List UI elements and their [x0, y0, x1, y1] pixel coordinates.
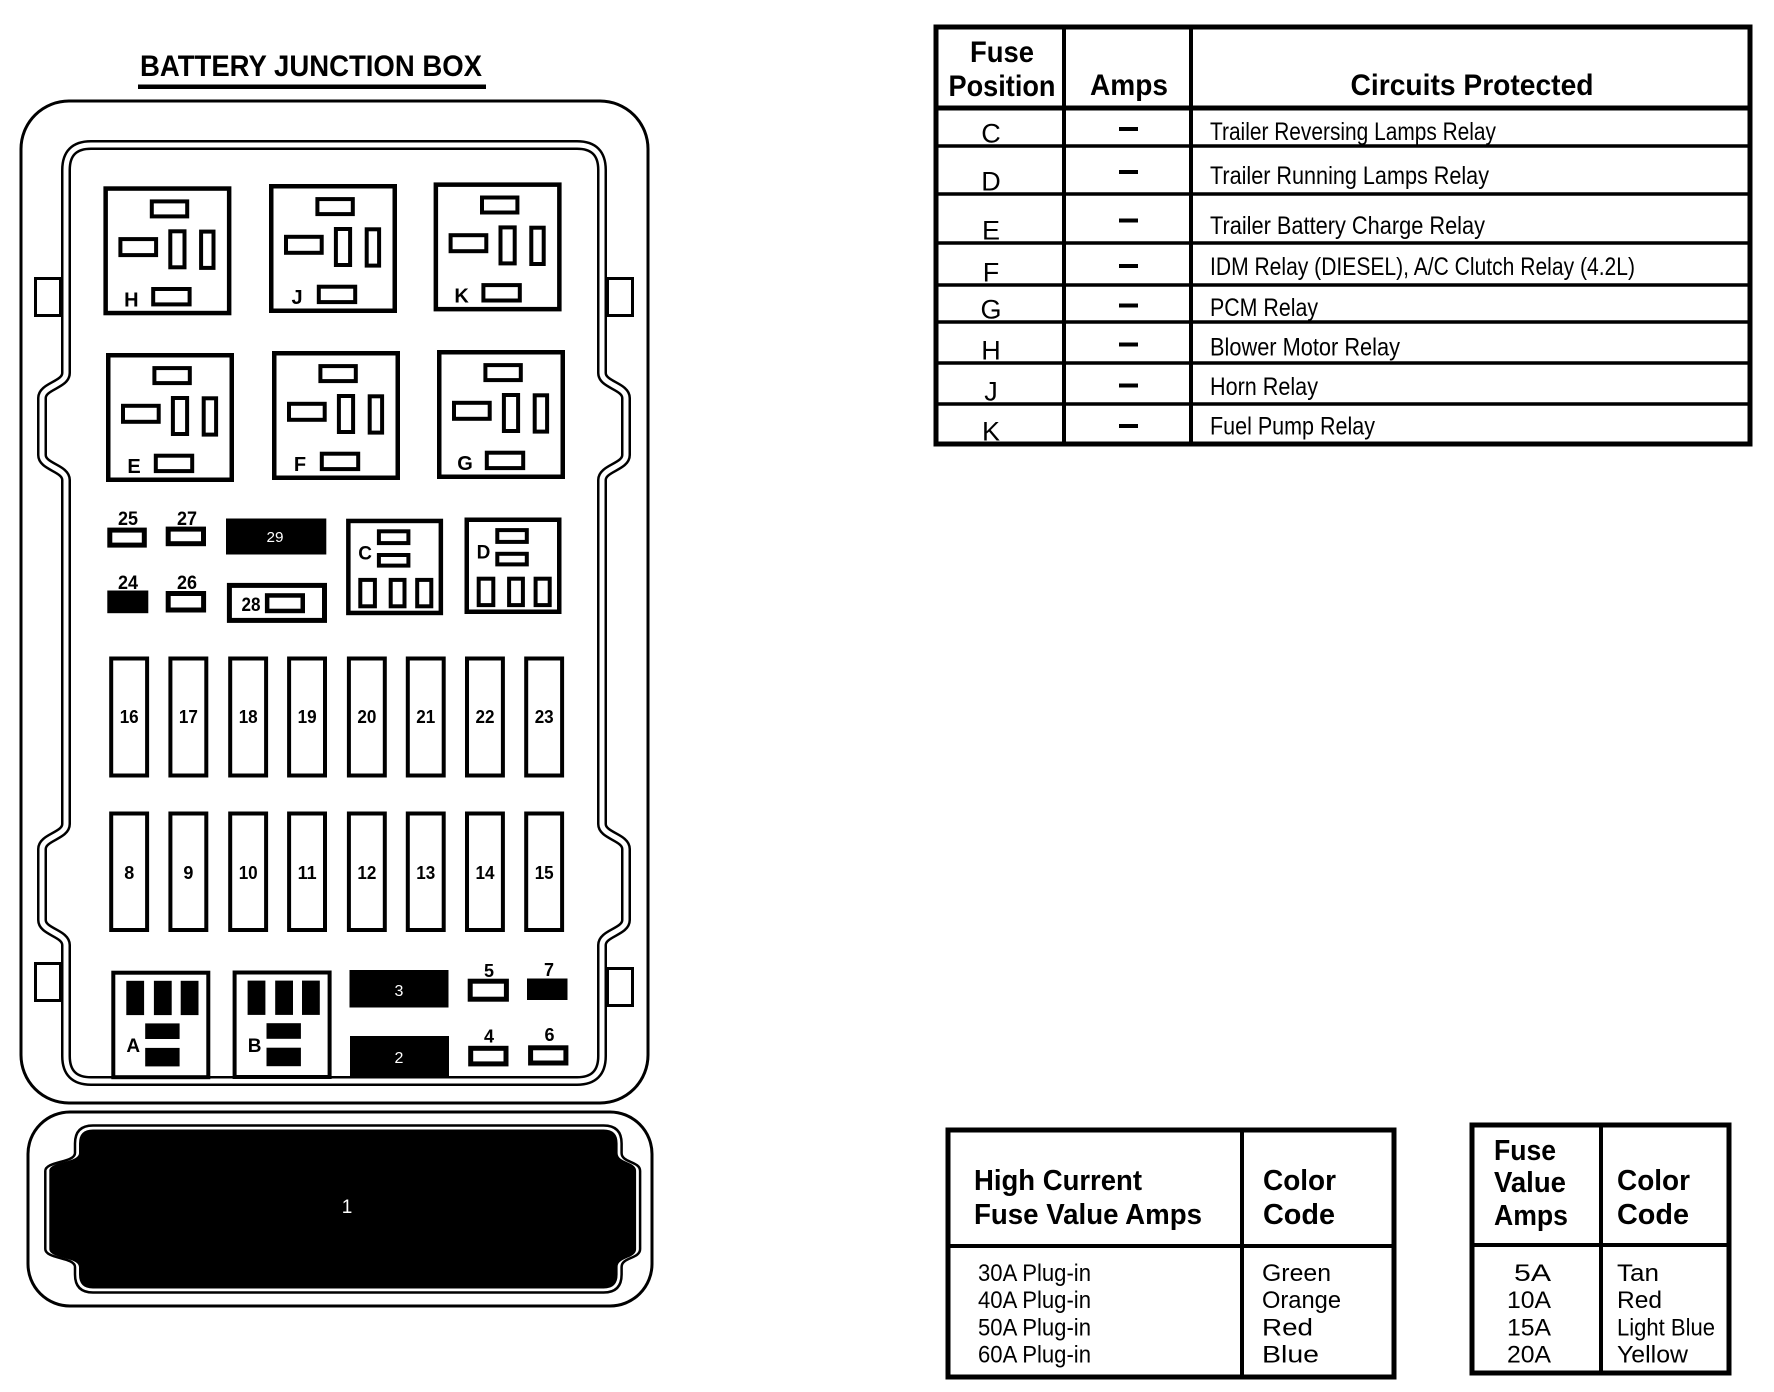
svg-text:Red: Red [1262, 1314, 1313, 1341]
svg-text:H: H [124, 289, 138, 311]
svg-text:E: E [127, 456, 140, 478]
svg-text:Code: Code [1617, 1199, 1689, 1231]
svg-text:F: F [983, 258, 1000, 288]
svg-text:20A: 20A [1507, 1342, 1551, 1369]
svg-text:5: 5 [484, 961, 494, 981]
svg-text:Fuel Pump Relay: Fuel Pump Relay [1210, 413, 1375, 441]
svg-text:1: 1 [342, 1197, 353, 1218]
svg-text:Color: Color [1617, 1165, 1690, 1197]
svg-text:Red: Red [1617, 1287, 1662, 1314]
svg-text:C: C [981, 119, 1001, 149]
svg-text:30A Plug-in: 30A Plug-in [978, 1260, 1091, 1287]
svg-text:13: 13 [416, 863, 435, 883]
svg-text:Fuse: Fuse [1494, 1135, 1556, 1167]
svg-text:K: K [982, 417, 1000, 447]
svg-text:8: 8 [124, 863, 134, 883]
svg-text:Blue: Blue [1262, 1342, 1319, 1369]
svg-text:Trailer Running Lamps Relay: Trailer Running Lamps Relay [1210, 162, 1489, 190]
svg-text:E: E [982, 216, 1000, 246]
svg-text:B: B [248, 1036, 262, 1057]
svg-text:12: 12 [357, 863, 376, 883]
svg-text:20: 20 [357, 707, 376, 727]
svg-text:K: K [454, 285, 469, 307]
svg-text:PCM Relay: PCM Relay [1210, 294, 1318, 322]
svg-text:Yellow: Yellow [1617, 1342, 1689, 1369]
svg-text:28: 28 [242, 595, 261, 616]
svg-text:60A Plug-in: 60A Plug-in [978, 1342, 1091, 1369]
svg-text:G: G [980, 295, 1001, 325]
svg-text:Fuse Value Amps: Fuse Value Amps [974, 1199, 1202, 1231]
svg-text:D: D [477, 543, 491, 564]
svg-text:Position: Position [949, 70, 1056, 103]
svg-text:Value: Value [1494, 1167, 1566, 1199]
svg-text:50A Plug-in: 50A Plug-in [978, 1314, 1091, 1341]
svg-text:Amps: Amps [1090, 69, 1168, 102]
svg-text:18: 18 [239, 707, 258, 727]
svg-text:Trailer Reversing Lamps Relay: Trailer Reversing Lamps Relay [1210, 118, 1496, 146]
svg-text:High Current: High Current [974, 1165, 1142, 1197]
svg-text:10: 10 [239, 863, 258, 883]
svg-text:14: 14 [476, 863, 495, 883]
svg-text:5A: 5A [1514, 1260, 1551, 1287]
svg-text:Amps: Amps [1494, 1200, 1568, 1232]
svg-text:29: 29 [267, 529, 284, 546]
svg-text:Circuits Protected: Circuits Protected [1351, 69, 1594, 102]
svg-text:21: 21 [416, 707, 435, 727]
svg-text:22: 22 [476, 707, 495, 727]
svg-text:40A Plug-in: 40A Plug-in [978, 1287, 1091, 1314]
svg-text:16: 16 [120, 707, 139, 727]
svg-text:BATTERY JUNCTION BOX: BATTERY JUNCTION BOX [140, 50, 482, 83]
svg-text:10A: 10A [1507, 1287, 1551, 1314]
svg-text:J: J [291, 287, 302, 309]
svg-text:D: D [981, 167, 1001, 197]
svg-text:IDM Relay (DIESEL), A/C Clutch: IDM Relay (DIESEL), A/C Clutch Relay (4.… [1210, 253, 1635, 281]
svg-text:17: 17 [179, 707, 198, 727]
svg-text:C: C [358, 544, 372, 565]
svg-text:7: 7 [544, 960, 554, 980]
svg-text:23: 23 [535, 707, 554, 727]
svg-text:Light Blue: Light Blue [1617, 1314, 1715, 1341]
svg-text:Horn Relay: Horn Relay [1210, 373, 1318, 401]
svg-text:2: 2 [395, 1050, 404, 1067]
svg-text:Green: Green [1262, 1260, 1331, 1287]
svg-text:H: H [981, 336, 1001, 366]
svg-text:Blower Motor Relay: Blower Motor Relay [1210, 334, 1400, 362]
svg-text:Fuse: Fuse [970, 36, 1034, 69]
svg-text:Trailer Battery Charge Relay: Trailer Battery Charge Relay [1210, 212, 1485, 240]
svg-text:Tan: Tan [1617, 1260, 1659, 1287]
svg-text:15: 15 [535, 863, 554, 883]
svg-text:26: 26 [177, 573, 197, 594]
svg-text:Orange: Orange [1262, 1287, 1341, 1314]
svg-text:J: J [984, 377, 998, 407]
svg-text:25: 25 [118, 509, 138, 530]
svg-text:F: F [294, 454, 306, 476]
svg-text:Color: Color [1263, 1165, 1336, 1197]
svg-text:19: 19 [298, 707, 317, 727]
svg-text:4: 4 [484, 1027, 494, 1047]
svg-text:6: 6 [544, 1025, 554, 1045]
svg-text:15A: 15A [1507, 1314, 1551, 1341]
svg-text:11: 11 [298, 863, 317, 883]
svg-text:A: A [126, 1036, 140, 1057]
svg-text:3: 3 [395, 983, 404, 1000]
svg-text:Code: Code [1263, 1199, 1335, 1231]
svg-text:G: G [457, 453, 473, 475]
svg-text:9: 9 [183, 863, 193, 883]
